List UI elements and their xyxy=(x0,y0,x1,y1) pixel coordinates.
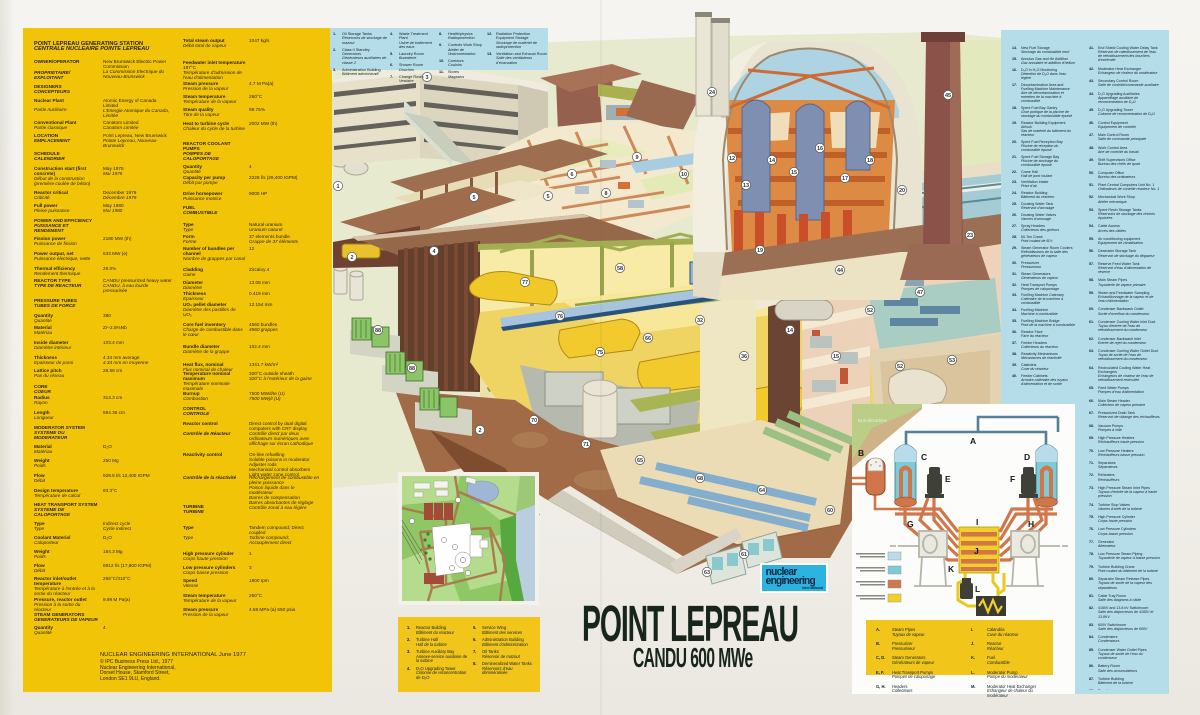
svg-text:M.S.Skvortsov: M.S.Skvortsov xyxy=(858,418,888,423)
svg-text:E: E xyxy=(945,474,951,484)
svg-text:C: C xyxy=(921,452,927,462)
svg-text:D: D xyxy=(1024,452,1030,462)
svg-text:A: A xyxy=(970,436,976,446)
svg-text:F: F xyxy=(1010,474,1015,484)
svg-text:K: K xyxy=(948,564,955,574)
svg-text:L: L xyxy=(975,584,980,594)
svg-text:I: I xyxy=(976,517,978,527)
svg-text:J: J xyxy=(974,546,979,556)
svg-text:B: B xyxy=(858,448,864,458)
svg-text:H: H xyxy=(1028,519,1034,529)
svg-text:G: G xyxy=(907,519,914,529)
